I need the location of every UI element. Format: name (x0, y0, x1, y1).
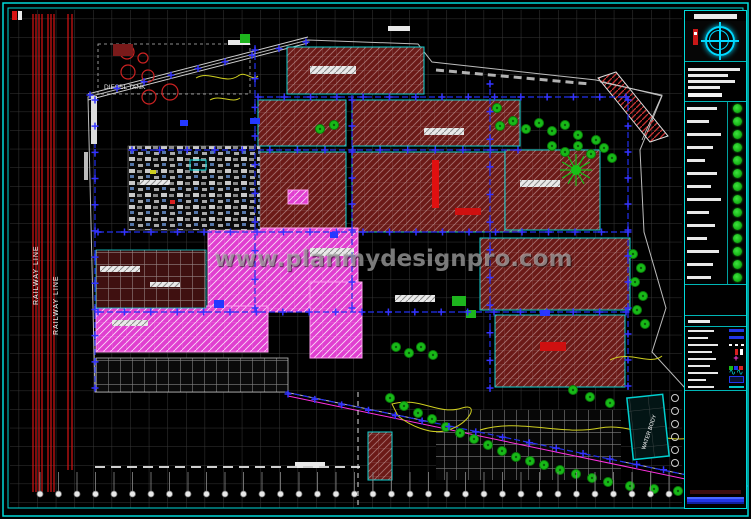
legend-label-bar (687, 237, 707, 240)
legend-label-bar (687, 133, 721, 136)
footer-blue-bar (687, 497, 743, 504)
title-block: +∿∿ (684, 10, 747, 509)
line-legend-row: ∿∿ (685, 369, 746, 376)
legend-label-bar (688, 344, 718, 346)
tree-icon (727, 180, 746, 193)
legend-label-bar (688, 358, 716, 360)
info-line (688, 68, 740, 71)
legend-label-bar (687, 159, 705, 162)
line-legend-row (685, 341, 746, 348)
tree-legend-row (685, 219, 746, 232)
tree-icon (727, 115, 746, 128)
white-dash-icon (726, 344, 746, 346)
notes-empty-area (685, 391, 746, 490)
legend-label-bar (687, 198, 721, 201)
tree-icon (727, 219, 746, 232)
railway-line-label-1: RAILWAY LINE (33, 245, 40, 305)
legend-label-bar (688, 365, 710, 367)
railway-line-label-2: RAILWAY LINE (53, 275, 60, 335)
line-legend-row (685, 383, 746, 390)
logo-box (685, 21, 746, 61)
legend-label-bar (688, 379, 706, 381)
globe-inner-ring-icon (709, 30, 729, 50)
line-legend-row (685, 376, 746, 383)
tree-icon (727, 245, 746, 258)
tree-icon (727, 154, 746, 167)
info-line (688, 80, 735, 83)
legend-label-bar (687, 146, 713, 149)
cyan-bar-icon (726, 386, 746, 388)
tree-legend-row (685, 154, 746, 167)
blue-bar-icon (726, 329, 746, 332)
info-line (688, 86, 720, 89)
tree-legend-row (685, 167, 746, 180)
logo-red-icon (693, 29, 698, 45)
legend-label-bar (687, 107, 717, 110)
legend-label-bar (687, 276, 711, 279)
legend-label-bar (687, 172, 717, 175)
tree-legend-row (685, 258, 746, 271)
legend-label-bar (687, 185, 711, 188)
tree-legend-row (685, 180, 746, 193)
cad-site-plan-screenshot: RAILWAY LINE RAILWAY LINE (0, 0, 751, 519)
tree-legend-row (685, 206, 746, 219)
legend-label-bar (688, 337, 708, 339)
tree-icon (727, 206, 746, 219)
line-legend-row (685, 327, 746, 334)
diesel-tank-label: DIESEL TANK (104, 84, 146, 91)
tree-icon (727, 232, 746, 245)
line-legend-row (685, 334, 746, 341)
legend-label-bar (688, 386, 714, 388)
logo-section (685, 11, 746, 62)
project-info-section (685, 62, 746, 102)
logo-title-bar (694, 14, 737, 19)
legend-label-bar (687, 224, 715, 227)
tree-legend-row (685, 271, 746, 284)
tree-legend-row (685, 193, 746, 206)
site-plan-drawing: RAILWAY LINE RAILWAY LINE (0, 0, 751, 519)
tree-legend-row (685, 232, 746, 245)
tree-icon (727, 102, 746, 115)
blue-rect-icon (726, 376, 746, 383)
tree-icon (727, 193, 746, 206)
legend2-header-bar (688, 320, 710, 323)
legend-label-bar (688, 330, 714, 332)
blue-bar-icon (726, 336, 746, 339)
tree-legend (685, 102, 746, 285)
wave-icon: ∿∿ (726, 369, 746, 376)
tree-icon (727, 141, 746, 154)
tree-legend-row (685, 128, 746, 141)
tree-icon (727, 167, 746, 180)
legend-label-bar (687, 120, 709, 123)
tree-legend-row (685, 245, 746, 258)
tree-icon (727, 128, 746, 141)
legend-header-bar (688, 93, 722, 97)
tree-icon (727, 271, 746, 284)
tree-legend-row (685, 141, 746, 154)
tree-icon (727, 258, 746, 271)
legend-label-bar (687, 211, 709, 214)
legend-label-bar (687, 263, 713, 266)
legend-label-bar (688, 372, 718, 374)
legend-label-bar (688, 351, 712, 353)
legend2-header (685, 316, 746, 327)
corner-marker (12, 11, 22, 20)
legend-label-bar (687, 250, 719, 253)
tree-legend-row (685, 115, 746, 128)
footer-maroon-strip (690, 490, 741, 494)
info-line (688, 74, 728, 77)
line-legend: +∿∿ (685, 327, 746, 391)
empty-section (685, 285, 746, 316)
tree-legend-row (685, 102, 746, 115)
